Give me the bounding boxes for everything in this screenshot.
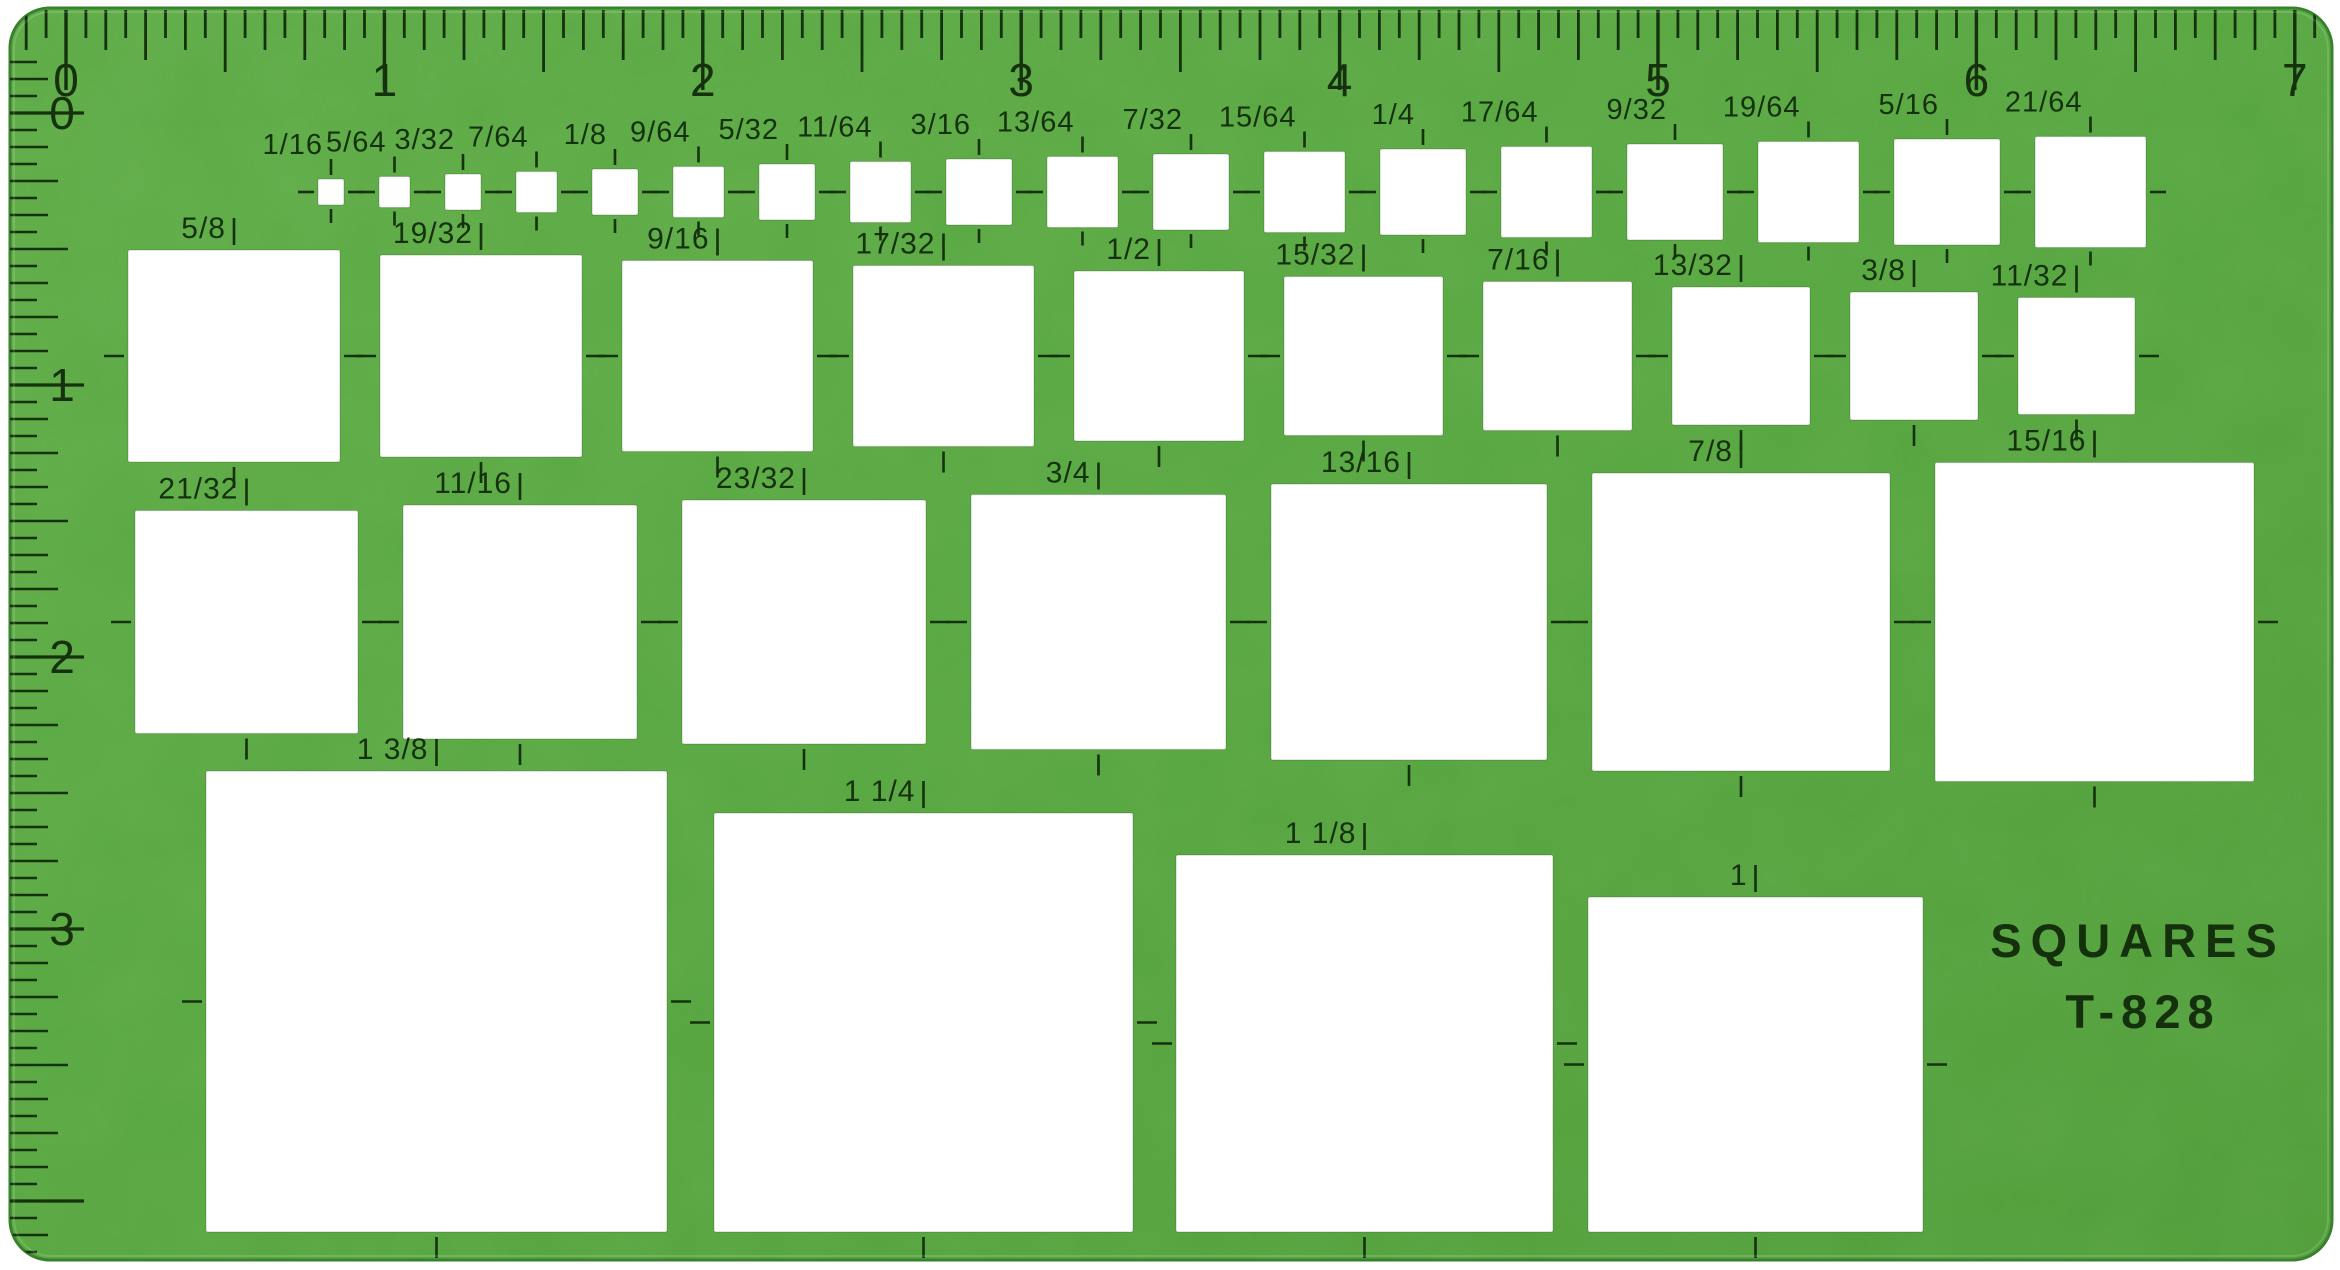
square-cutout-9-32 — [1627, 144, 1723, 240]
square-size-label-9-32: 9/32 — [1607, 94, 1667, 126]
square-cutout-3-4 — [971, 495, 1226, 750]
left-ruler-number-0: 0 — [49, 87, 75, 139]
square-size-label-1-4: 1/4 — [1372, 99, 1415, 131]
square-cutout-15-16 — [1935, 463, 2254, 782]
square-cutout-19-32 — [380, 255, 582, 457]
square-size-label-11-32: 11/32 — [1991, 260, 2069, 293]
square-size-label-9-64: 9/64 — [630, 117, 690, 149]
square-size-label-13-32: 13/32 — [1653, 249, 1733, 282]
square-cutout-15-32 — [1284, 277, 1443, 436]
left-ruler-number-3: 3 — [49, 903, 75, 955]
square-cutout-1 — [1588, 897, 1923, 1232]
template-surface: 01234567 0123 1/165/643/327/641/89/645/3… — [10, 8, 2332, 1260]
square-size-label-19-64: 19/64 — [1723, 92, 1801, 124]
square-size-label-7-16: 7/16 — [1487, 244, 1549, 277]
square-size-label-9-16: 9/16 — [647, 223, 709, 256]
square-size-label-5-16: 5/16 — [1879, 89, 1939, 121]
square-cutout-1-3-8 — [206, 771, 667, 1232]
square-cutout-1-16 — [318, 179, 344, 205]
top-ruler-number-3: 3 — [1008, 54, 1034, 106]
top-ruler-number-1: 1 — [372, 54, 398, 106]
top-ruler-number-2: 2 — [690, 54, 716, 106]
square-size-label-1-1-4: 1 1/4 — [844, 775, 916, 808]
square-size-label-1-3-8: 1 3/8 — [357, 733, 429, 766]
square-size-label-19-32: 19/32 — [393, 217, 473, 250]
left-ruler-number-1: 1 — [49, 359, 75, 411]
square-cutout-9-64 — [673, 167, 724, 218]
square-size-label-11-64: 11/64 — [797, 112, 872, 144]
top-ruler-number-6: 6 — [1964, 54, 1990, 106]
square-cutout-21-64 — [2035, 137, 2146, 248]
square-cutout-13-16 — [1271, 484, 1547, 760]
square-cutout-9-16 — [622, 261, 813, 452]
square-cutout-1-1-4 — [714, 813, 1133, 1232]
square-cutout-1-2 — [1074, 271, 1244, 441]
square-cutout-13-64 — [1047, 157, 1118, 228]
photo-stage: 01234567 0123 1/165/643/327/641/89/645/3… — [0, 0, 2340, 1270]
square-cutout-17-32 — [853, 266, 1034, 447]
top-ruler-number-4: 4 — [1327, 54, 1353, 106]
square-size-label-1: 1 — [1730, 859, 1748, 892]
square-size-label-21-64: 21/64 — [2005, 87, 2083, 119]
square-size-label-3-16: 3/16 — [911, 109, 971, 141]
squares-template: 01234567 0123 1/165/643/327/641/89/645/3… — [0, 0, 2340, 1270]
square-size-label-3-4: 3/4 — [1046, 457, 1091, 490]
square-cutout-17-64 — [1501, 147, 1592, 238]
square-size-label-15-64: 15/64 — [1219, 102, 1297, 134]
square-size-label-3-32: 3/32 — [395, 124, 455, 156]
square-cutout-11-16 — [403, 505, 637, 739]
square-size-label-17-32: 17/32 — [855, 228, 935, 261]
square-cutout-15-64 — [1264, 152, 1345, 233]
square-cutout-11-32 — [2018, 298, 2135, 415]
square-cutout-5-16 — [1894, 139, 2000, 245]
square-cutout-5-32 — [759, 164, 815, 220]
square-size-label-7-8: 7/8 — [1688, 435, 1733, 468]
square-size-label-5-32: 5/32 — [719, 114, 779, 146]
square-size-label-5-8: 5/8 — [181, 212, 226, 245]
square-cutout-1-1-8 — [1176, 855, 1553, 1232]
square-cutout-23-32 — [682, 500, 926, 744]
square-cutout-19-64 — [1758, 142, 1859, 243]
square-cutout-7-8 — [1592, 473, 1890, 771]
square-size-label-7-32: 7/32 — [1123, 104, 1183, 136]
square-cutout-7-16 — [1483, 282, 1632, 431]
square-cutout-3-32 — [445, 174, 481, 210]
square-size-label-3-8: 3/8 — [1861, 254, 1906, 287]
square-size-label-21-32: 21/32 — [158, 473, 238, 506]
square-size-label-23-32: 23/32 — [716, 462, 796, 495]
square-size-label-15-16: 15/16 — [2006, 425, 2086, 458]
top-ruler-number-7: 7 — [2282, 54, 2308, 106]
product-model: T-828 — [2065, 985, 2220, 1038]
square-cutout-21-32 — [135, 511, 358, 734]
square-cutout-5-64 — [379, 177, 410, 208]
square-size-label-13-64: 13/64 — [997, 107, 1075, 139]
square-cutout-3-8 — [1850, 292, 1978, 420]
square-size-label-15-32: 15/32 — [1275, 239, 1355, 272]
square-size-label-1-16: 1/16 — [263, 129, 323, 161]
square-cutout-3-16 — [946, 159, 1012, 225]
square-size-label-1-2: 1/2 — [1106, 233, 1151, 266]
square-size-label-13-16: 13/16 — [1321, 446, 1401, 479]
square-cutout-5-8 — [128, 250, 340, 462]
square-size-label-5-64: 5/64 — [326, 127, 386, 159]
square-cutout-7-64 — [516, 172, 557, 213]
square-size-label-1-8: 1/8 — [564, 119, 607, 151]
square-size-label-17-64: 17/64 — [1461, 97, 1539, 129]
square-cutout-11-64 — [850, 162, 911, 223]
square-size-label-11-16: 11/16 — [434, 467, 512, 500]
square-size-label-1-1-8: 1 1/8 — [1285, 817, 1357, 850]
square-cutout-13-32 — [1672, 287, 1810, 425]
left-ruler-number-2: 2 — [49, 631, 75, 683]
square-size-label-7-64: 7/64 — [468, 122, 528, 154]
square-cutout-1-8 — [592, 169, 638, 215]
square-cutout-1-4 — [1380, 149, 1466, 235]
product-title: SQUARES — [1990, 914, 2285, 967]
square-cutout-7-32 — [1153, 154, 1229, 230]
